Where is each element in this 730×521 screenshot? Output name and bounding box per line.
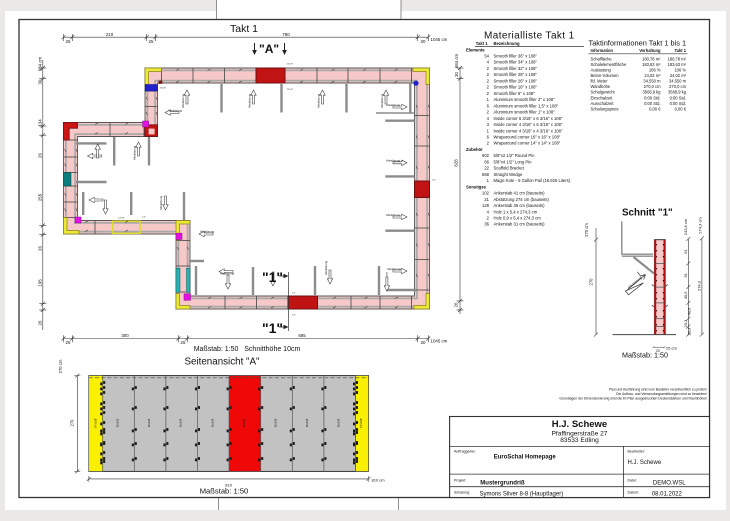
svg-text:270: 270: [70, 419, 75, 427]
svg-text:Symons Silver 8-8 (Hauptlager): Symons Silver 8-8 (Hauptlager): [480, 491, 564, 497]
svg-text:14"x108": 14"x108": [94, 418, 98, 428]
svg-text:Schalfläche: Schalfläche: [591, 56, 613, 61]
svg-text:Abstützung 274 cm (bauseits): Abstützung 274 cm (bauseits): [494, 197, 550, 202]
svg-text:270 cm: 270 cm: [584, 223, 589, 237]
svg-text:255: 255: [37, 193, 42, 201]
svg-text:26: 26: [37, 153, 42, 158]
svg-text:Aluminium smooth filler 1,5" x: Aluminium smooth filler 1,5" x 108": [494, 103, 559, 108]
svg-text:Projekt:: Projekt:: [454, 478, 466, 482]
svg-text:Takt 1: Takt 1: [674, 48, 686, 53]
svg-text:270,0 cm: 270,0 cm: [644, 84, 661, 89]
svg-text:26: 26: [37, 246, 42, 251]
svg-text:Maßstab: 1:50 Schnitthöhe 10: Maßstab: 1:50 Schnitthöhe 10cm: [194, 346, 301, 353]
svg-text:36x108: 36x108: [305, 418, 309, 427]
svg-text:Plan und Ausführung sind vom B: Plan und Ausführung sind vom Bauleiter v…: [609, 388, 707, 392]
svg-text:195: 195: [37, 279, 42, 287]
svg-text:270 cm: 270 cm: [58, 359, 63, 373]
svg-text:14"x108": 14"x108": [359, 418, 363, 428]
svg-text:61: 61: [683, 272, 688, 277]
svg-text:Abstützung: Abstützung: [324, 261, 328, 275]
svg-text:1045 cm: 1045 cm: [431, 37, 448, 42]
svg-text:21: 21: [484, 197, 489, 202]
svg-text:5/8"x4 1/2" Long Pin: 5/8"x4 1/2" Long Pin: [494, 159, 533, 164]
svg-text:Smooth filler 36" x 108": Smooth filler 36" x 108": [494, 54, 538, 59]
svg-text:26: 26: [37, 320, 42, 325]
svg-text:Wraparound corner 14" x 14" x: Wraparound corner 14" x 14" x 108": [494, 141, 561, 146]
svg-text:Schnitt "1": Schnitt "1": [622, 208, 673, 219]
svg-text:Takt 1: Takt 1: [476, 41, 488, 46]
svg-text:Abstützung: Abstützung: [386, 213, 400, 217]
svg-text:210: 210: [106, 32, 114, 37]
svg-text:83533 Edling: 83533 Edling: [560, 437, 599, 444]
svg-text:36x108: 36x108: [147, 418, 151, 427]
svg-text:1'4": 1'4": [142, 217, 146, 219]
svg-text:20,3: 20,3: [687, 327, 692, 336]
svg-text:Schalgewicht: Schalgewicht: [591, 90, 616, 95]
svg-text:Seitenansicht "A": Seitenansicht "A": [184, 356, 260, 367]
svg-text:66: 66: [484, 159, 489, 164]
svg-text:22: 22: [484, 166, 489, 171]
svg-text:"1": "1": [262, 320, 283, 336]
svg-text:Die Aufbau- und Verwendungsanl: Die Aufbau- und Verwendungsanleitungen s…: [616, 392, 707, 396]
svg-text:Straight Wedge: Straight Wedge: [494, 172, 523, 177]
svg-text:08.01.2022: 08.01.2022: [652, 491, 683, 497]
svg-text:Takt 1: Takt 1: [230, 23, 258, 35]
svg-text:24,02 m³: 24,02 m³: [670, 73, 687, 78]
svg-text:30: 30: [454, 72, 459, 77]
svg-text:Abstützung: Abstützung: [248, 94, 252, 108]
svg-text:Abstützung: Abstützung: [387, 267, 401, 271]
svg-text:Inside corner 4 3/16" x 6 3/16: Inside corner 4 3/16" x 6 3/16" x 108": [494, 122, 563, 127]
svg-text:Ausschalzeit: Ausschalzeit: [591, 101, 615, 106]
svg-text:54: 54: [484, 54, 489, 59]
svg-text:1045 cm: 1045 cm: [431, 338, 448, 343]
svg-text:Mustergrundriß: Mustergrundriß: [480, 480, 525, 486]
svg-text:34,550 m: 34,550 m: [643, 79, 661, 84]
svg-text:40,6: 40,6: [687, 307, 692, 316]
svg-text:106 %: 106 %: [674, 68, 686, 73]
svg-text:1'6"x9': 1'6"x9': [160, 88, 167, 90]
svg-text:1'4": 1'4": [432, 180, 436, 182]
svg-text:25: 25: [149, 39, 154, 44]
svg-text:Abstützung: Abstützung: [159, 196, 163, 210]
svg-text:5/8"x2 1/2" Round Pin: 5/8"x2 1/2" Round Pin: [494, 153, 536, 158]
svg-text:810 cm: 810 cm: [372, 477, 386, 482]
svg-text:180,78 m²: 180,78 m²: [668, 56, 687, 61]
svg-text:180,78 m²: 180,78 m²: [642, 56, 661, 61]
svg-text:36x108: 36x108: [242, 418, 246, 427]
svg-text:Inside corner 4 3/16" x 4 3/16: Inside corner 4 3/16" x 4 3/16" x 108": [494, 128, 563, 133]
svg-text:Auslastung: Auslastung: [591, 68, 612, 73]
svg-text:0:00 Std.: 0:00 Std.: [644, 101, 660, 106]
svg-text:684 cm: 684 cm: [37, 56, 42, 71]
svg-text:36x108: 36x108: [337, 418, 341, 427]
svg-text:Zubehör: Zubehör: [466, 147, 483, 152]
svg-text:Abstützung: Abstützung: [168, 109, 182, 113]
svg-text:134: 134: [37, 119, 42, 127]
svg-text:628: 628: [454, 159, 459, 167]
svg-text:Smooth filler 34" x 108": Smooth filler 34" x 108": [494, 60, 538, 65]
svg-text:Grundlagen der Dimensionierung: Grundlagen der Dimensionierung sind die …: [559, 397, 707, 401]
svg-text:25: 25: [66, 340, 71, 345]
svg-text:Bezeichnung: Bezeichnung: [494, 41, 520, 46]
svg-text:Inside corner 6 3/16" x 6 3/16: Inside corner 6 3/16" x 6 3/16" x 108": [494, 116, 563, 121]
svg-text:Maßstab: 1:50: Maßstab: 1:50: [200, 487, 249, 496]
svg-text:Elemente: Elemente: [466, 47, 485, 52]
svg-text:Wandhöhe: Wandhöhe: [591, 84, 611, 89]
svg-text:Abstützung: Abstützung: [380, 94, 384, 108]
svg-text:Schalung:: Schalung:: [454, 490, 470, 494]
svg-text:274,3: 274,3: [696, 280, 701, 291]
svg-text:Taktinformationen Takt 1 bis: Taktinformationen Takt 1 bis 1: [589, 39, 687, 48]
svg-text:25: 25: [66, 39, 71, 44]
svg-text:300: 300: [121, 333, 129, 338]
svg-text:Information: Information: [591, 48, 614, 53]
svg-text:Maßstab: 1:50: Maßstab: 1:50: [622, 351, 668, 360]
svg-text:102: 102: [482, 191, 490, 196]
svg-text:0:00 Std.: 0:00 Std.: [670, 101, 686, 106]
svg-text:270: 270: [589, 278, 594, 286]
svg-text:36x108: 36x108: [274, 418, 278, 427]
svg-text:0:00 Std.: 0:00 Std.: [670, 95, 686, 100]
svg-text:Smooth filler 32" x 108": Smooth filler 32" x 108": [494, 66, 538, 71]
svg-text:Abstützung: Abstützung: [181, 94, 185, 108]
svg-text:Auftraggeber:: Auftraggeber:: [454, 449, 476, 453]
svg-text:3568,9 kg: 3568,9 kg: [643, 90, 662, 95]
svg-text:243,8 cm: 243,8 cm: [683, 218, 688, 235]
svg-text:0,00 €: 0,00 €: [649, 106, 661, 111]
svg-text:lfd. Meter: lfd. Meter: [591, 79, 609, 84]
svg-text:3568,9 kg: 3568,9 kg: [668, 90, 687, 95]
svg-text:Smooth filler 16" x 108": Smooth filler 16" x 108": [494, 85, 538, 90]
svg-text:20,3: 20,3: [683, 319, 688, 328]
svg-text:274,3 cm: 274,3 cm: [698, 217, 703, 234]
svg-text:Beton-Volumen: Beton-Volumen: [591, 73, 620, 78]
svg-text:DEMO.WSL: DEMO.WSL: [653, 480, 686, 486]
svg-text:183,63 m²: 183,63 m²: [642, 62, 661, 67]
svg-text:Smooth filler 28" x 108": Smooth filler 28" x 108": [494, 72, 538, 77]
svg-text:30: 30: [37, 79, 42, 84]
svg-text:Sonstiges: Sonstiges: [466, 184, 487, 189]
svg-text:780: 780: [282, 32, 290, 37]
svg-text:Magic Kote - 5 Gallon Pail (18: Magic Kote - 5 Gallon Pail (18.925 Liter…: [494, 178, 571, 183]
svg-text:30: 30: [421, 39, 426, 44]
svg-text:24,02 m³: 24,02 m³: [644, 73, 661, 78]
svg-text:36x108: 36x108: [116, 418, 120, 427]
svg-text:Holz 0,9 x 5,4 x 274,3 cm: Holz 0,9 x 5,4 x 274,3 cm: [494, 216, 542, 221]
svg-text:Ankerstab 31 cm (bauseits): Ankerstab 31 cm (bauseits): [494, 222, 546, 227]
svg-text:"1": "1": [262, 269, 283, 285]
svg-text:36: 36: [484, 222, 489, 227]
svg-text:34,550 m: 34,550 m: [669, 79, 687, 84]
svg-text:Schalelementfläche: Schalelementfläche: [591, 62, 627, 67]
svg-text:Vorhaltung: Vorhaltung: [639, 48, 661, 53]
svg-text:Datum:: Datum:: [628, 490, 640, 494]
svg-text:H.J. Schewe: H.J. Schewe: [552, 419, 607, 430]
svg-text:685: 685: [298, 333, 306, 338]
svg-text:40,6: 40,6: [683, 291, 688, 300]
svg-text:0,00 €: 0,00 €: [675, 106, 687, 111]
svg-text:Holz 1 x 5,4 x 274,3 cm: Holz 1 x 5,4 x 274,3 cm: [494, 209, 538, 214]
svg-text:602: 602: [482, 153, 490, 158]
svg-text:568: 568: [482, 172, 490, 177]
svg-text:26: 26: [454, 302, 459, 307]
svg-text:Abstützung: Abstützung: [133, 146, 137, 160]
svg-text:Smooth filler 26" x 108": Smooth filler 26" x 108": [494, 78, 538, 83]
svg-text:Scaffold Bracket: Scaffold Bracket: [494, 166, 525, 171]
svg-text:270,0 cm: 270,0 cm: [669, 84, 686, 89]
svg-text:1'4"x9': 1'4"x9': [287, 89, 294, 91]
svg-text:183,63 m²: 183,63 m²: [668, 62, 687, 67]
svg-text:Abstützung: Abstützung: [317, 94, 321, 108]
svg-text:Datei:: Datei:: [628, 478, 637, 482]
svg-text:Smooth filler 6" x 108": Smooth filler 6" x 108": [494, 91, 536, 96]
svg-text:Aluminium smooth filler 1" x 1: Aluminium smooth filler 1" x 108": [494, 110, 556, 115]
svg-text:128: 128: [482, 203, 490, 208]
svg-text:EuroSchal Homepage: EuroSchal Homepage: [494, 454, 557, 460]
svg-text:Abstützung: Abstützung: [386, 103, 400, 107]
svg-text:Abstützung: Abstützung: [386, 159, 400, 163]
svg-text:Schalungspreis: Schalungspreis: [591, 106, 619, 111]
svg-text:Ankerstab 36 cm (bauseits): Ankerstab 36 cm (bauseits): [494, 203, 546, 208]
svg-text:Wraparound corner 16" x 16" x: Wraparound corner 16" x 16" x 108": [494, 135, 561, 140]
svg-text:1'4"x9': 1'4"x9': [118, 218, 125, 220]
svg-text:106 %: 106 %: [649, 68, 661, 73]
svg-text:684 cm: 684 cm: [454, 53, 459, 68]
svg-text:Abstützung: Abstützung: [200, 230, 214, 234]
svg-text:0:00 Std.: 0:00 Std.: [644, 95, 660, 100]
svg-text:25: 25: [181, 340, 186, 345]
svg-text:Ankerstab 41 cm (bauseits): Ankerstab 41 cm (bauseits): [494, 191, 546, 196]
svg-text:61: 61: [683, 249, 688, 254]
svg-text:"A": "A": [259, 42, 279, 56]
svg-text:1'4": 1'4": [292, 315, 296, 317]
svg-text:1'4"x9': 1'4"x9': [287, 64, 294, 66]
svg-text:Aluminium smooth filler 2" x 1: Aluminium smooth filler 2" x 108": [494, 97, 556, 102]
svg-text:Bearbeiter:: Bearbeiter:: [628, 449, 646, 453]
svg-text:Einschalzeit: Einschalzeit: [591, 95, 614, 100]
svg-text:36x108: 36x108: [179, 418, 183, 427]
svg-text:1'4": 1'4": [292, 293, 296, 295]
svg-text:30: 30: [421, 340, 426, 345]
svg-text:H.J. Schewe: H.J. Schewe: [628, 460, 662, 466]
svg-text:36x108: 36x108: [210, 418, 214, 427]
svg-text:Abstützung: Abstützung: [220, 272, 234, 276]
